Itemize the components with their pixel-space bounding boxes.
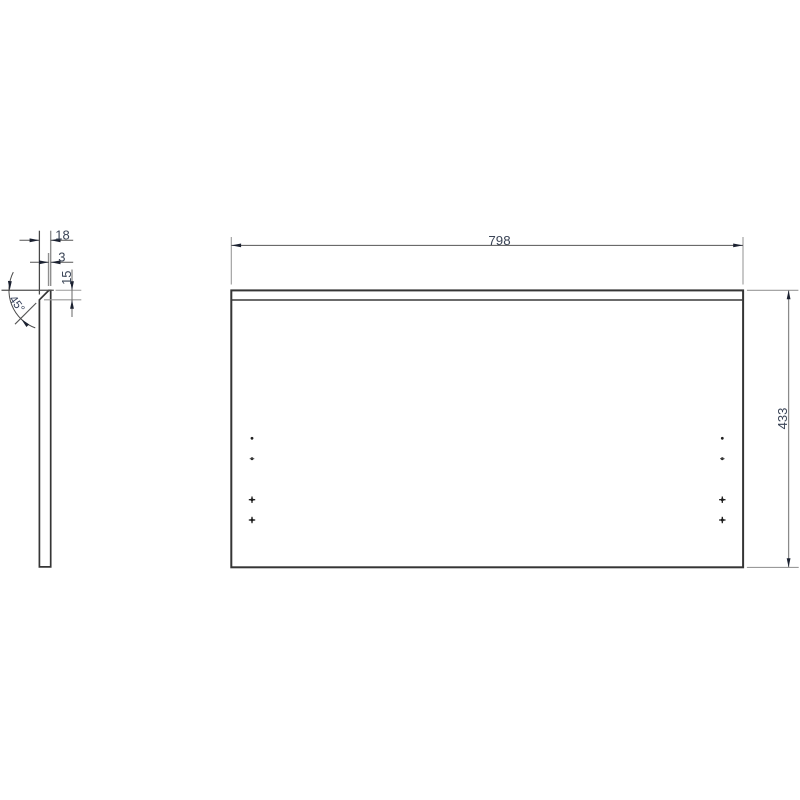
svg-text:3: 3: [58, 249, 65, 264]
svg-text:433: 433: [775, 408, 790, 430]
svg-text:15: 15: [59, 270, 74, 284]
svg-text:18: 18: [55, 227, 69, 242]
svg-text:798: 798: [488, 233, 510, 248]
